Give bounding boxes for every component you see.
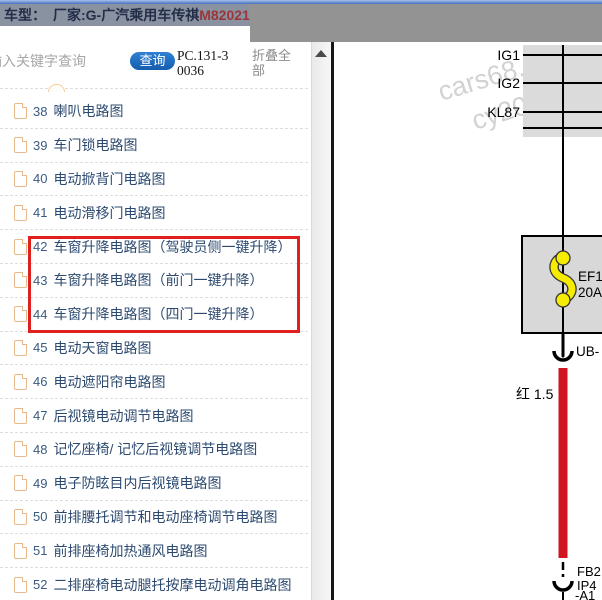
item-label: 车窗升降电路图（四门一键升降） bbox=[53, 304, 263, 324]
item-label: 车窗升降电路图（前门一键升降） bbox=[53, 270, 263, 290]
fuse-name-label: EF1 bbox=[578, 269, 602, 284]
item-number: 40 bbox=[33, 171, 47, 186]
list-item-48[interactable]: 48记忆座椅/ 记忆后视镜调节电路图 bbox=[0, 433, 308, 467]
item-number: 47 bbox=[33, 408, 47, 423]
list-item-44[interactable]: 44车窗升降电路图（四门一键升降） bbox=[0, 298, 308, 332]
list-item-51[interactable]: 51前排座椅加热通风电路图 bbox=[0, 534, 308, 568]
list-item-43[interactable]: 43车窗升降电路图（前门一键升降） bbox=[0, 264, 308, 298]
document-icon bbox=[14, 374, 27, 390]
item-number: 45 bbox=[33, 340, 47, 355]
bottom-connector-label1: FB2 bbox=[577, 564, 601, 579]
connector-top-label: UB- bbox=[576, 344, 599, 359]
list-item-45[interactable]: 45电动天窗电路图 bbox=[0, 332, 308, 366]
item-number: 42 bbox=[33, 239, 47, 254]
wiring-diagram-panel: cars68.co cy20165 IG1 IG2 KL87 bbox=[334, 42, 602, 600]
item-number: 41 bbox=[33, 205, 47, 220]
document-icon bbox=[14, 137, 27, 153]
document-icon bbox=[14, 543, 27, 559]
document-icon bbox=[14, 441, 27, 457]
manufacturer-label: 厂家:G-广汽乘用车传祺 bbox=[53, 5, 199, 25]
document-icon bbox=[14, 475, 27, 491]
document-icon bbox=[14, 171, 27, 187]
item-number: 46 bbox=[33, 374, 47, 389]
item-label: 后视镜电动调节电路图 bbox=[53, 406, 193, 426]
bottom-connector-label3: -A1 bbox=[575, 588, 595, 600]
search-button[interactable]: 查询 bbox=[130, 52, 175, 70]
item-number: 52 bbox=[33, 577, 47, 592]
item-label: 电动遮阳帘电路图 bbox=[53, 372, 165, 392]
fuse-rating-label: 20A bbox=[578, 285, 602, 300]
item-number: 39 bbox=[33, 138, 47, 153]
connector-socket-icon bbox=[554, 581, 572, 590]
item-number: 50 bbox=[33, 509, 47, 524]
item-number: 44 bbox=[33, 307, 47, 322]
item-label: 车门锁电路图 bbox=[53, 135, 137, 155]
list-item-42[interactable]: 42车窗升降电路图（驾驶员侧一键升降） bbox=[0, 230, 308, 264]
vehicle-type-label: 车型： bbox=[4, 5, 53, 25]
fuse-symbol-icon bbox=[554, 251, 572, 307]
document-icon bbox=[14, 272, 27, 288]
list-item-38[interactable]: 38喇叭电路图 bbox=[0, 95, 308, 129]
item-label: 前排腰托调节和电动座椅调节电路图 bbox=[53, 507, 277, 527]
wiring-diagram-canvas: cars68.co cy20165 IG1 IG2 KL87 bbox=[334, 42, 602, 600]
list-item-49[interactable]: 49电子防眩目内后视镜电路图 bbox=[0, 467, 308, 501]
partial-scrolled-item bbox=[48, 84, 65, 92]
item-number: 49 bbox=[33, 476, 47, 491]
document-icon bbox=[14, 577, 27, 593]
model-highlight: M82021 bbox=[199, 7, 250, 23]
list-item-41[interactable]: 41电动滑移门电路图 bbox=[0, 196, 308, 230]
document-icon bbox=[14, 239, 27, 255]
list-item-46[interactable]: 46电动遮阳帘电路图 bbox=[0, 365, 308, 399]
bus-label-ig1: IG1 bbox=[497, 47, 520, 63]
diagram-list: 38喇叭电路图 39车门锁电路图 40电动掀背门电路图 41电动滑移门电路图 4… bbox=[0, 95, 308, 600]
list-item-40[interactable]: 40电动掀背门电路图 bbox=[0, 163, 308, 197]
item-label: 电动滑移门电路图 bbox=[53, 203, 165, 223]
item-label: 记忆座椅/ 记忆后视镜调节电路图 bbox=[53, 439, 257, 459]
list-item-39[interactable]: 39车门锁电路图 bbox=[0, 129, 308, 163]
document-icon bbox=[14, 509, 27, 525]
scroll-up-arrow-icon[interactable] bbox=[315, 50, 327, 57]
vertical-scrollbar[interactable] bbox=[311, 42, 331, 600]
document-code: PC.131-30036 bbox=[177, 48, 231, 78]
item-label: 电动天窗电路图 bbox=[53, 338, 151, 358]
item-number: 38 bbox=[33, 104, 47, 119]
collapse-all-link[interactable]: 折叠全部 bbox=[252, 48, 298, 78]
document-icon bbox=[14, 340, 27, 356]
document-icon bbox=[14, 408, 27, 424]
item-number: 48 bbox=[33, 442, 47, 457]
document-icon bbox=[14, 306, 27, 322]
item-label: 喇叭电路图 bbox=[53, 101, 123, 121]
bus-label-kl87: KL87 bbox=[487, 104, 520, 120]
app-window: 车型： 厂家:G-广汽乘用车传祺M82021 查询 PC.131-30036 折… bbox=[0, 0, 602, 600]
document-icon bbox=[14, 205, 27, 221]
wire-gauge-label: 红 1.5 bbox=[516, 386, 554, 402]
item-label: 电子防眩目内后视镜电路图 bbox=[53, 473, 221, 493]
list-item-50[interactable]: 50前排腰托调节和电动座椅调节电路图 bbox=[0, 501, 308, 535]
search-input[interactable] bbox=[0, 50, 110, 72]
item-number: 51 bbox=[33, 543, 47, 558]
bus-label-ig2: IG2 bbox=[497, 75, 520, 91]
toolbar-separator bbox=[0, 88, 308, 89]
header-gray-panel bbox=[250, 4, 602, 42]
document-icon bbox=[14, 103, 27, 119]
list-item-52[interactable]: 52二排座椅电动腿托按摩电动调角电路图 bbox=[0, 568, 308, 600]
item-label: 电动掀背门电路图 bbox=[53, 169, 165, 189]
item-number: 43 bbox=[33, 273, 47, 288]
list-item-47[interactable]: 47后视镜电动调节电路图 bbox=[0, 399, 308, 433]
item-label: 车窗升降电路图（驾驶员侧一键升降） bbox=[53, 237, 291, 257]
item-label: 二排座椅电动腿托按摩电动调角电路图 bbox=[53, 575, 291, 595]
item-label: 前排座椅加热通风电路图 bbox=[53, 541, 207, 561]
